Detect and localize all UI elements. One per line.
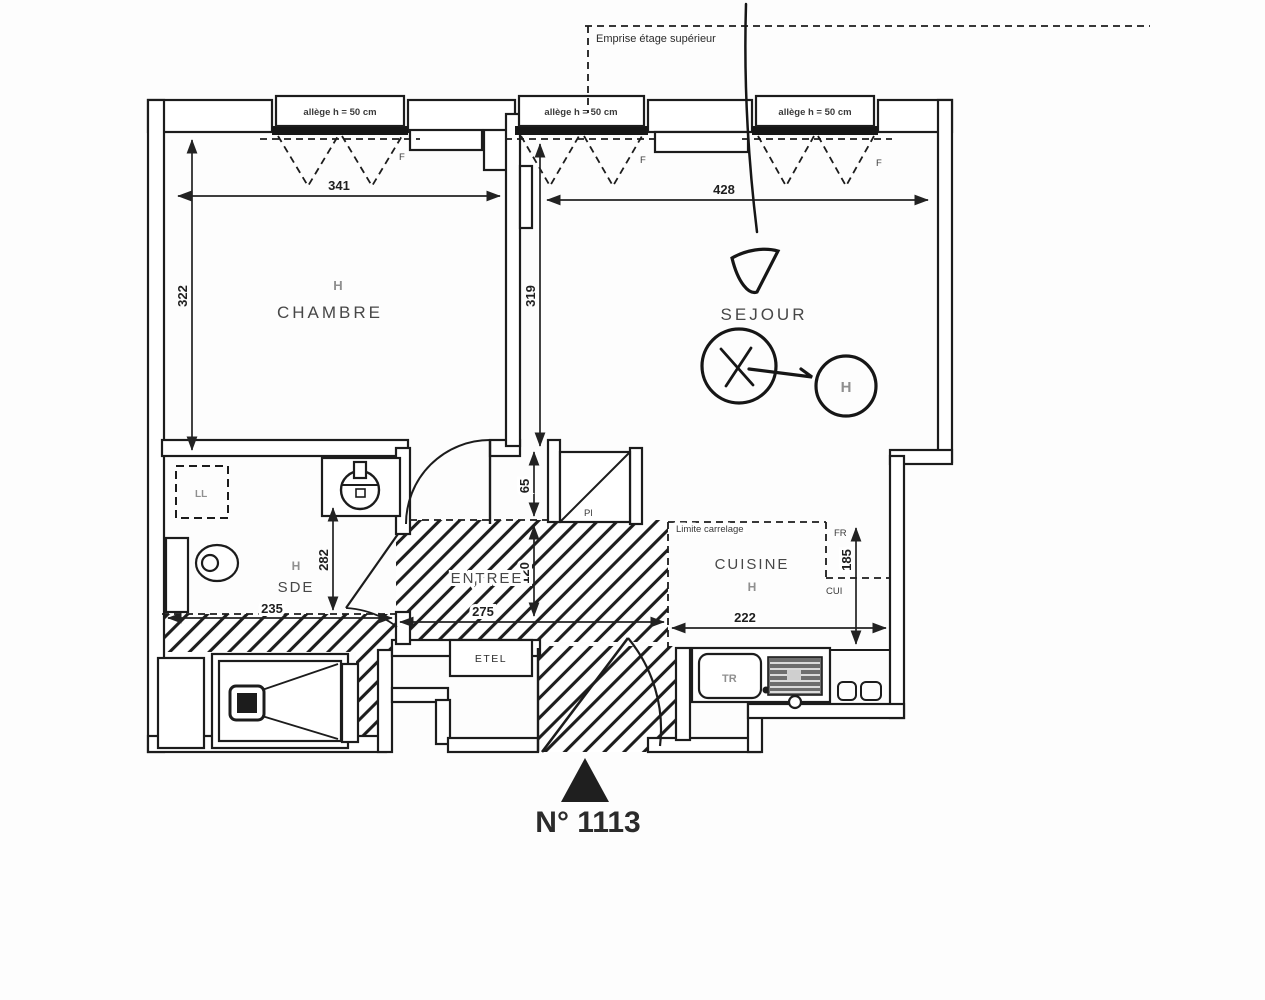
washing-machine: LL	[176, 466, 228, 518]
window-3-sill-label: allège h = 50 cm	[778, 107, 851, 118]
dim-sde-height: 282	[316, 549, 331, 571]
floor-plan-page: Pl allège h = 50 cm F allège h = 50 cm F…	[0, 0, 1265, 1000]
dim-sejour-height: 319	[523, 285, 538, 307]
etel-box: ETEL	[450, 640, 532, 676]
chambre-radiator-icon: H	[333, 278, 342, 293]
etel-label: ETEL	[475, 653, 507, 665]
sde-door	[346, 534, 398, 627]
washer-label: LL	[195, 489, 207, 500]
shower	[212, 654, 348, 748]
washbasin	[322, 458, 400, 516]
dim-chambre-width: 341	[328, 178, 350, 193]
entree-label: ENTREE	[451, 570, 524, 587]
sink-label: TR	[722, 673, 737, 685]
hand-arrow	[749, 369, 812, 377]
hand-annotations: H	[702, 4, 876, 416]
dim-entree-width: 275	[472, 604, 494, 619]
toilet	[166, 538, 238, 612]
kitchen-sink: TR	[692, 648, 890, 708]
floor-plan-drawing: Pl allège h = 50 cm F allège h = 50 cm F…	[0, 0, 1265, 1000]
dim-sde-width: 235	[261, 601, 283, 616]
entrance-marker: N° 1113	[535, 758, 640, 839]
cooker-label: CUI	[826, 586, 842, 597]
cuisine-radiator-icon: H	[748, 580, 757, 594]
sde-radiator-icon: H	[292, 559, 301, 573]
window-1: allège h = 50 cm F	[260, 96, 420, 186]
tile-limit-label: Limite carrelage	[676, 524, 744, 535]
dim-closet-height: 65	[517, 479, 532, 493]
dim-sejour-width: 428	[713, 182, 735, 197]
chambre-label: CHAMBRE	[277, 303, 383, 322]
cuisine-label: CUISINE	[715, 556, 790, 573]
window-3: allège h = 50 cm F	[742, 96, 892, 186]
closet-label: Pl	[584, 508, 592, 519]
closet: Pl	[560, 452, 630, 522]
window-2-sill-label: allège h = 50 cm	[544, 107, 617, 118]
entrance-triangle-icon	[561, 758, 609, 802]
hand-check-mark	[732, 249, 778, 292]
window-1-mark: F	[399, 152, 405, 163]
window-2-mark: F	[640, 155, 646, 166]
fridge-label: FR	[834, 528, 847, 539]
chambre-door	[406, 440, 490, 524]
dim-cuisine-width: 222	[734, 610, 756, 625]
window-1-sill-label: allège h = 50 cm	[303, 107, 376, 118]
unit-number: N° 1113	[535, 806, 640, 839]
window-3-mark: F	[876, 158, 882, 169]
emprise-label: Emprise étage supérieur	[596, 33, 716, 45]
dim-cuisine-height: 185	[839, 549, 854, 571]
sde-label: SDE	[278, 579, 315, 596]
sejour-radiator-icon: H	[841, 379, 852, 396]
dim-chambre-height: 322	[175, 285, 190, 307]
sejour-label: SEJOUR	[721, 305, 808, 324]
